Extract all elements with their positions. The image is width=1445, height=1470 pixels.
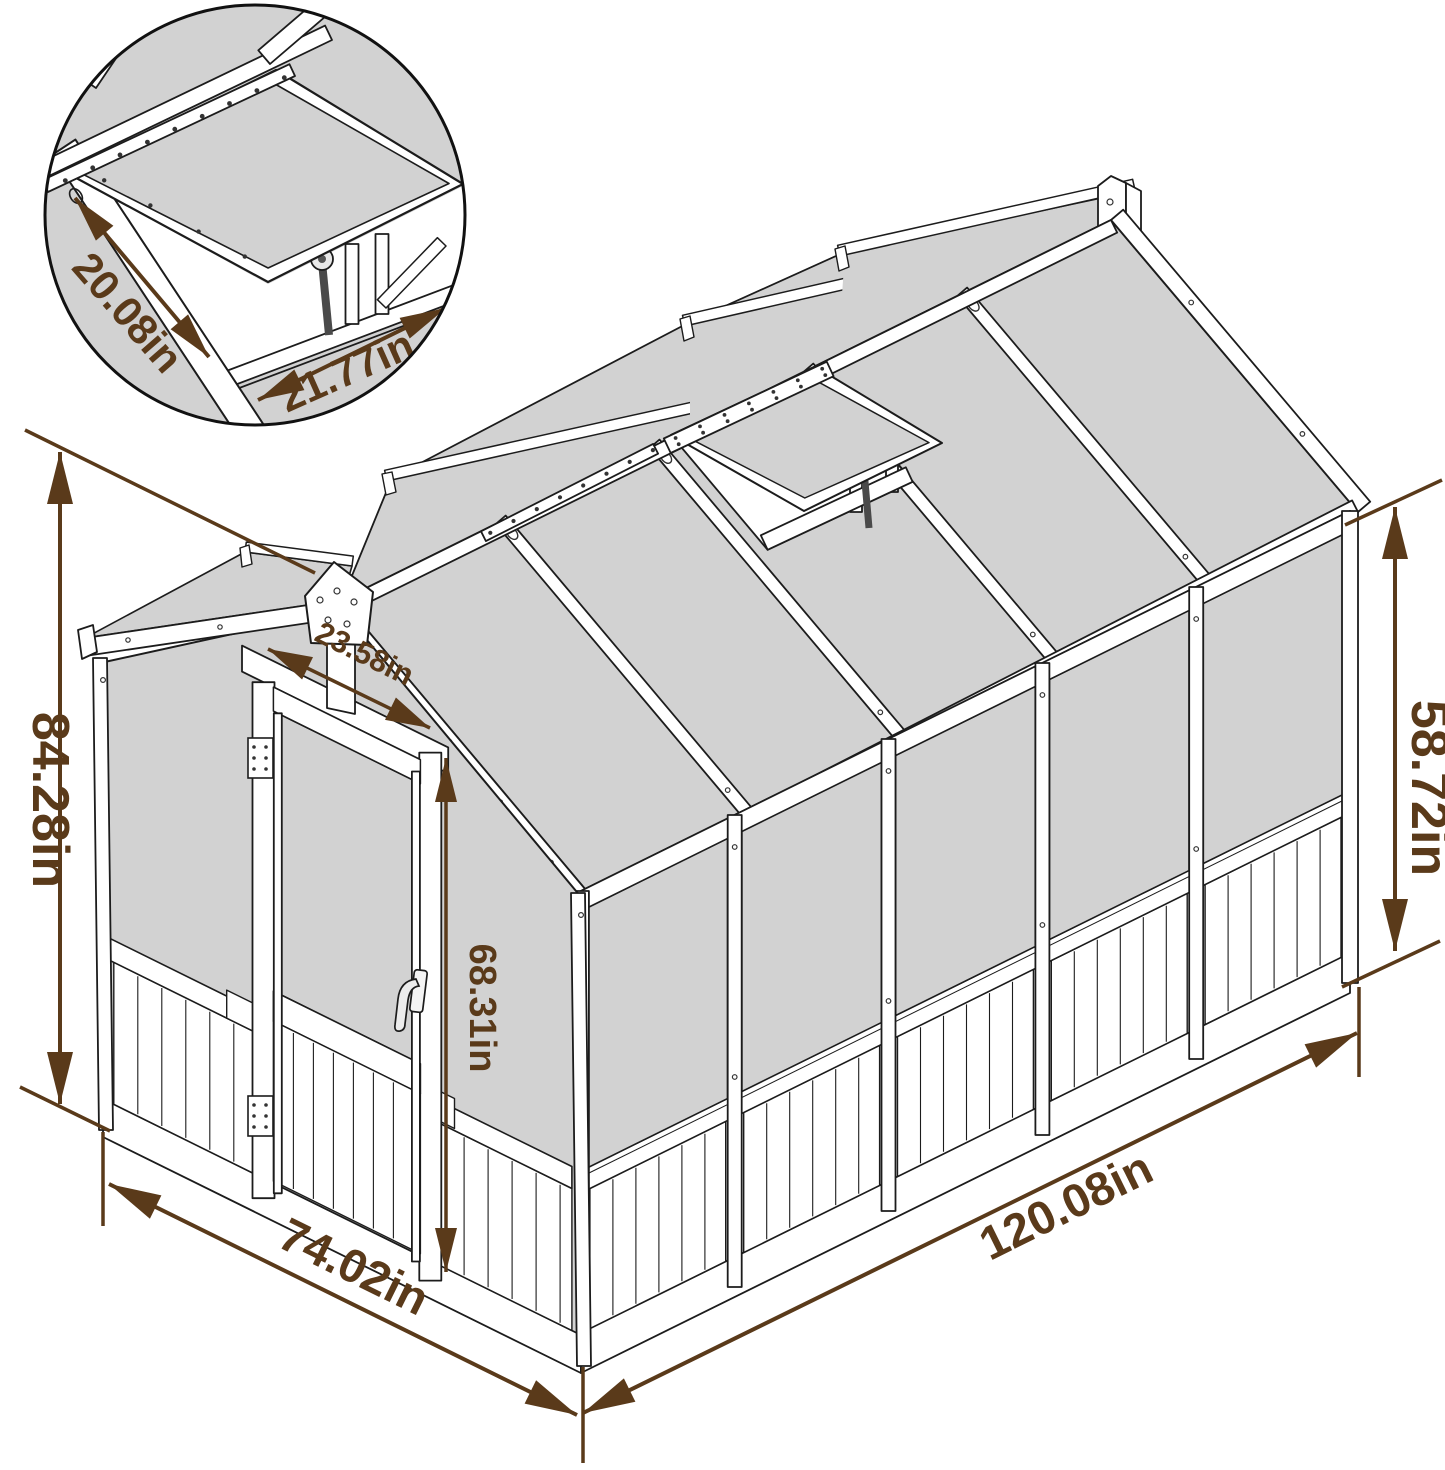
svg-text:58.72in: 58.72in (1400, 700, 1445, 876)
svg-text:84.28in: 84.28in (21, 712, 79, 888)
svg-text:68.31in: 68.31in (461, 944, 503, 1073)
